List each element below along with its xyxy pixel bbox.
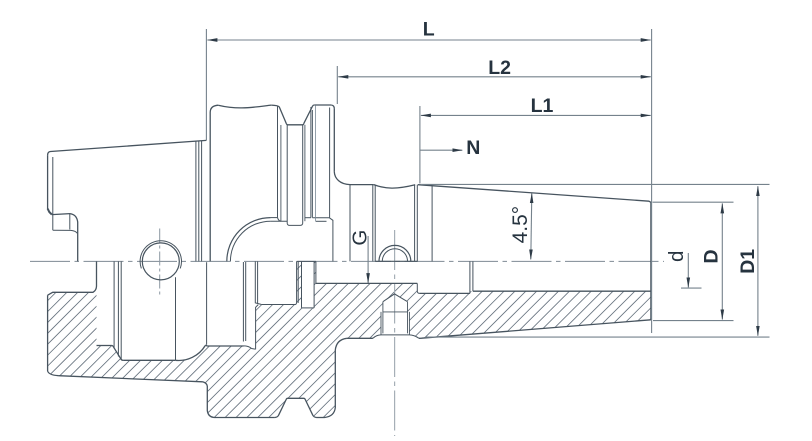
svg-text:D: D — [701, 249, 723, 263]
svg-text:L2: L2 — [488, 57, 511, 79]
svg-text:N: N — [466, 137, 480, 159]
svg-text:G: G — [349, 230, 372, 246]
svg-text:D1: D1 — [737, 249, 759, 274]
svg-text:d: d — [665, 251, 688, 262]
svg-text:L1: L1 — [531, 95, 554, 117]
svg-text:4.5°: 4.5° — [509, 206, 532, 244]
svg-text:L: L — [423, 18, 435, 40]
